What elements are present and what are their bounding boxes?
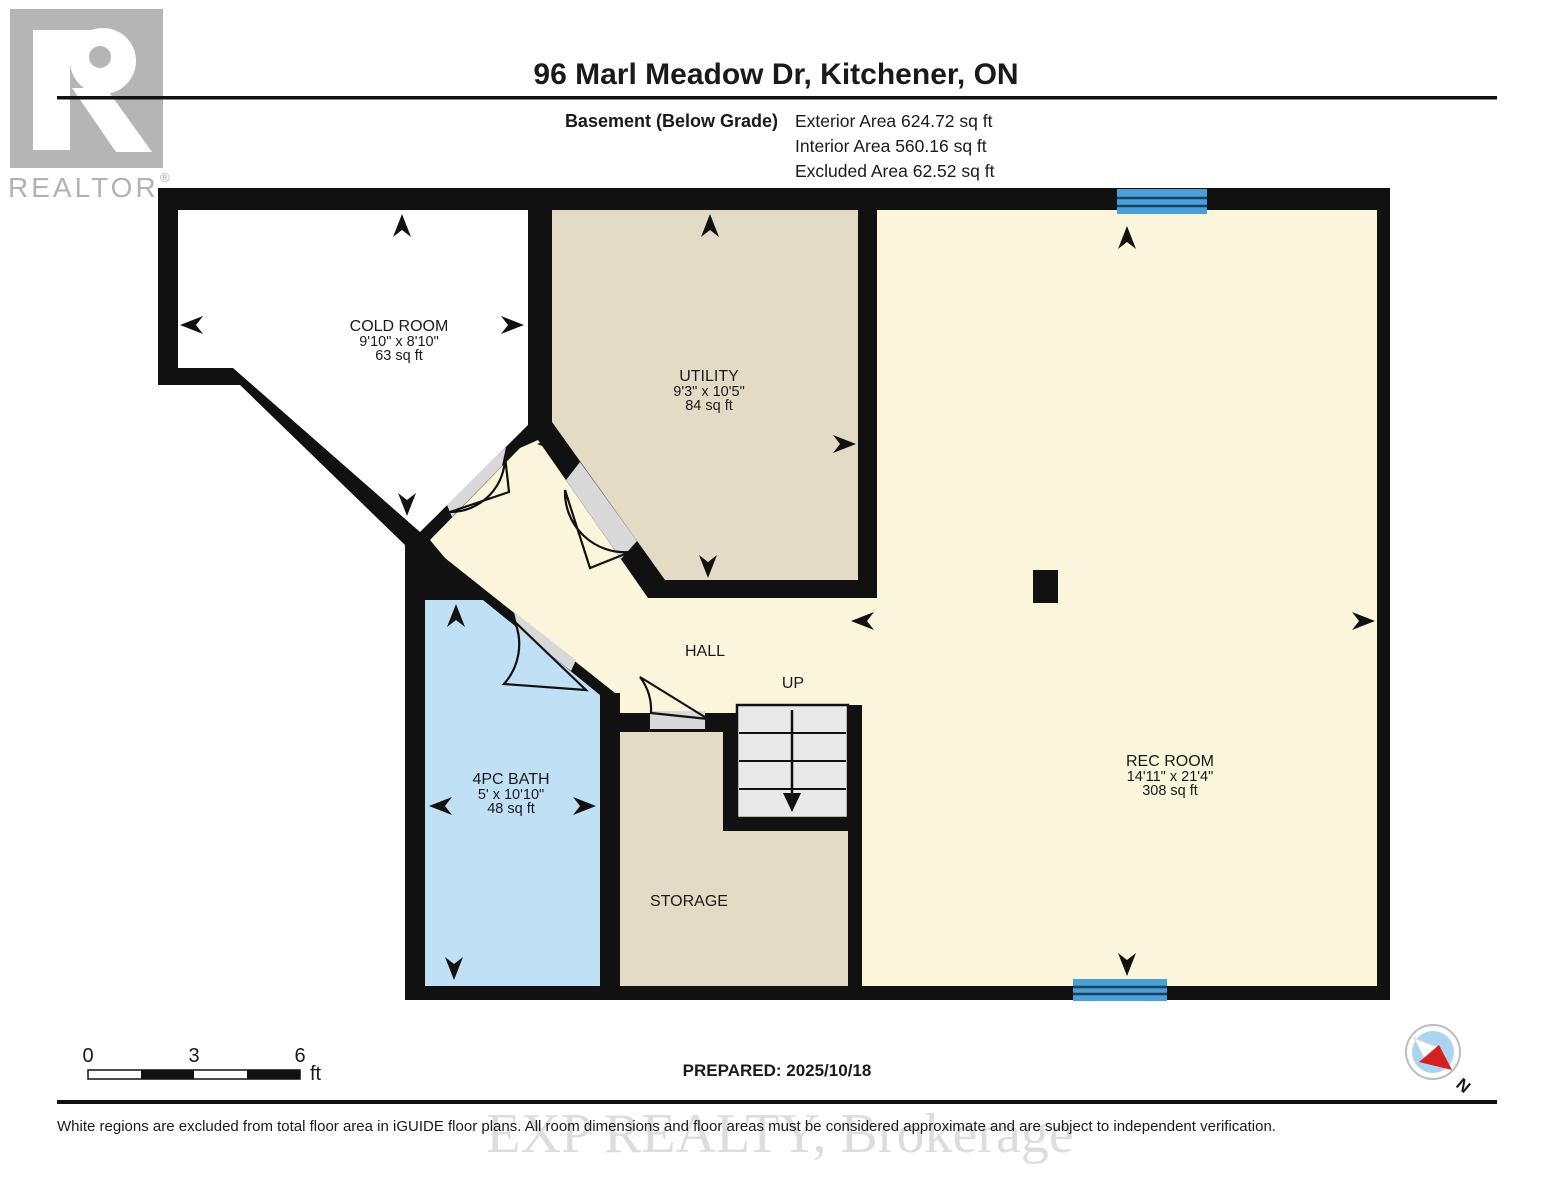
rec-room-label: REC ROOM bbox=[1126, 753, 1214, 770]
compass: N bbox=[1406, 1025, 1474, 1097]
scale-tick-6: 6 bbox=[294, 1045, 305, 1067]
floor-plan-canvas: REALTOR ® 96 Marl Meadow Dr, Kitchener, … bbox=[0, 0, 1553, 1200]
column bbox=[1033, 570, 1058, 603]
exterior-area: Exterior Area 624.72 sq ft bbox=[795, 111, 993, 131]
realtor-logo: REALTOR ® bbox=[8, 9, 170, 203]
utility-area: 84 sq ft bbox=[685, 398, 733, 414]
registered-mark: ® bbox=[160, 170, 170, 185]
excluded-area: Excluded Area 62.52 sq ft bbox=[795, 161, 995, 181]
scale-bar: 0 3 6 ft bbox=[82, 1045, 321, 1085]
window-top bbox=[1117, 189, 1207, 214]
cold-room-label: COLD ROOM bbox=[350, 318, 449, 335]
scale-tick-3: 3 bbox=[188, 1045, 199, 1067]
bath-area: 48 sq ft bbox=[487, 801, 535, 817]
prepared-date: PREPARED: 2025/10/18 bbox=[683, 1061, 872, 1080]
scale-unit: ft bbox=[310, 1063, 322, 1085]
cold-room-area: 63 sq ft bbox=[375, 348, 423, 364]
floor-label: Basement (Below Grade) bbox=[565, 111, 778, 131]
window-bottom bbox=[1073, 979, 1167, 1001]
stairs bbox=[737, 705, 848, 818]
footer-rule bbox=[57, 1100, 1497, 1104]
floor-plan-page: REALTOR ® 96 Marl Meadow Dr, Kitchener, … bbox=[0, 0, 1553, 1200]
header-rule bbox=[57, 96, 1497, 100]
realtor-wordmark: REALTOR bbox=[8, 172, 159, 203]
hall-label: HALL bbox=[685, 643, 725, 660]
stairs-up-label: UP bbox=[782, 675, 804, 692]
bath-label: 4PC BATH bbox=[472, 771, 549, 788]
compass-north-label: N bbox=[1452, 1075, 1474, 1097]
scale-tick-0: 0 bbox=[82, 1045, 93, 1067]
disclaimer-text: White regions are excluded from total fl… bbox=[57, 1118, 1276, 1135]
page-title: 96 Marl Meadow Dr, Kitchener, ON bbox=[533, 58, 1018, 91]
storage-label: STORAGE bbox=[650, 893, 728, 910]
rec-room-area: 308 sq ft bbox=[1142, 783, 1198, 799]
interior-area: Interior Area 560.16 sq ft bbox=[795, 136, 987, 156]
utility-label: UTILITY bbox=[679, 368, 739, 385]
